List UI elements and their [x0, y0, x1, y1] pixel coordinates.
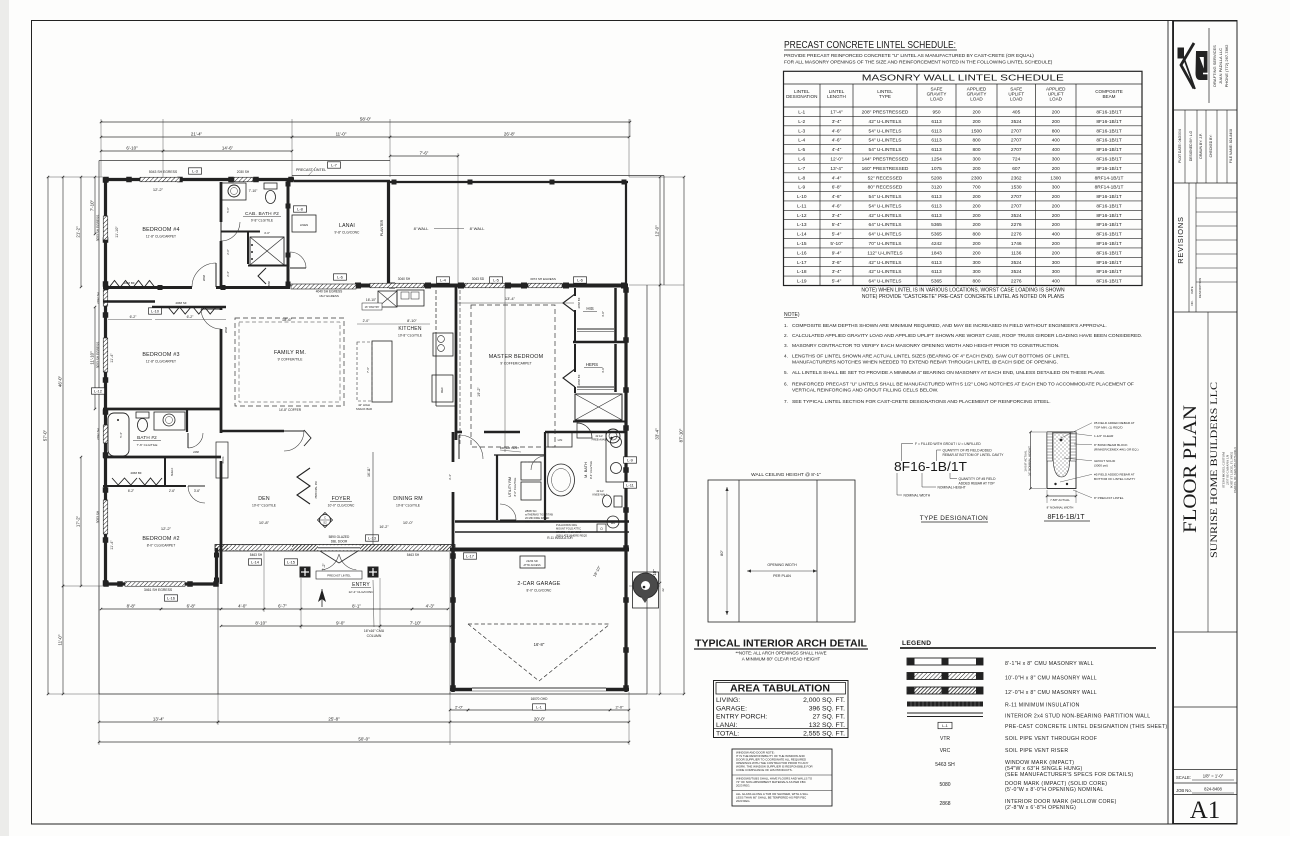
svg-text:L-14: L-14 [797, 232, 807, 238]
svg-text:L-10: L-10 [797, 194, 807, 200]
svg-text:L-17: L-17 [466, 554, 475, 559]
svg-text:4'-3": 4'-3" [426, 603, 435, 608]
svg-text:BOOK: BOOK [222, 456, 225, 463]
svg-text:8'-10": 8'-10" [255, 620, 267, 625]
svg-text:4'-6": 4'-6" [832, 194, 842, 200]
svg-text:2707: 2707 [1011, 203, 1022, 209]
svg-text:300: 300 [1052, 185, 1060, 191]
svg-text:2276: 2276 [1011, 279, 1022, 285]
svg-text:VRC: VRC [940, 748, 951, 754]
svg-text:6'-2": 6'-2" [130, 315, 138, 319]
svg-text:12'-0": 12'-0" [655, 225, 660, 237]
svg-text:200: 200 [972, 194, 980, 200]
svg-text:5'-4": 5'-4" [119, 432, 123, 438]
svg-text:950: 950 [932, 109, 940, 115]
svg-text:REINFORCED PRECAST "U" LINTELS: REINFORCED PRECAST "U" LINTELS SHALL BE … [792, 382, 1134, 388]
svg-text:L-7: L-7 [798, 166, 805, 172]
svg-text:400: 400 [1052, 279, 1060, 285]
svg-text:4068 BF: 4068 BF [130, 471, 142, 475]
svg-text:KNEE-WALL: KNEE-WALL [593, 493, 608, 497]
svg-text:42" U-LINTELS: 42" U-LINTELS [869, 269, 902, 275]
svg-text:BEDROOM #2: BEDROOM #2 [142, 536, 179, 542]
svg-text:54" U-LINTELS: 54" U-LINTELS [869, 203, 902, 209]
svg-text:2030 SH: 2030 SH [237, 170, 250, 174]
svg-text:SUNRISE HOME BUILDERS LLC: SUNRISE HOME BUILDERS LLC [1209, 382, 1219, 558]
svg-text:11'-4": 11'-4" [110, 353, 114, 363]
svg-text:2'-6": 2'-6" [226, 249, 230, 255]
svg-text:PRECAST LINTEL: PRECAST LINTEL [296, 168, 326, 172]
svg-text:2362: 2362 [1011, 175, 1022, 181]
svg-text:4'-0": 4'-0" [601, 311, 605, 317]
svg-text:80" RECESSED: 80" RECESSED [868, 185, 903, 191]
svg-text:6113: 6113 [931, 269, 942, 275]
svg-text:11'-0": 11'-0" [336, 131, 347, 136]
svg-text:QUANTITY OF #5 FIELD ADDED: QUANTITY OF #5 FIELD ADDED [943, 449, 993, 453]
svg-text:(RINKER/CEMEX #W1 OR EQ.): (RINKER/CEMEX #W1 OR EQ.) [1094, 448, 1139, 452]
svg-text:42 1/2: 42 1/2 [595, 434, 603, 438]
svg-text:ENTRY: ENTRY [352, 582, 370, 588]
svg-text:8" BOND BEAM BLOCK: 8" BOND BEAM BLOCK [1094, 443, 1129, 447]
svg-text:3040 SH: 3040 SH [398, 277, 411, 281]
svg-text:2023 REG.: 2023 REG. [736, 784, 750, 788]
svg-text:2668: 2668 [267, 281, 271, 287]
svg-text:A1: A1 [1190, 797, 1221, 824]
svg-text:200: 200 [1052, 213, 1060, 219]
svg-text:MASONRY CONTRACTOR TO VERIFY E: MASONRY CONTRACTOR TO VERIFY EACH MASONR… [792, 343, 1059, 349]
svg-text:L-1: L-1 [536, 705, 543, 710]
svg-text:3'-4": 3'-4" [832, 119, 842, 125]
svg-text:8'-0" CLG/TILE: 8'-0" CLG/TILE [513, 477, 517, 496]
svg-text:(3000 psi): (3000 psi) [1094, 464, 1108, 468]
svg-text:1300: 1300 [1050, 175, 1061, 181]
svg-text:13'-4": 13'-4" [153, 716, 165, 721]
svg-text:9'-4": 9'-4" [832, 250, 842, 256]
svg-text:#5 FIELD ADDED REBAR AT: #5 FIELD ADDED REBAR AT [1094, 473, 1135, 477]
svg-text:5043 SH EGRESS: 5043 SH EGRESS [149, 170, 178, 174]
svg-text:DBL DOOR: DBL DOOR [331, 540, 348, 544]
svg-text:54" U-LINTELS: 54" U-LINTELS [869, 138, 902, 144]
svg-text:2'-0": 2'-0" [363, 319, 371, 323]
svg-text:16x7 EGRESS: 16x7 EGRESS [319, 294, 339, 298]
svg-text:L-16: L-16 [797, 250, 807, 256]
svg-text:TOP MIN. (1) REQ'D: TOP MIN. (1) REQ'D [1094, 426, 1123, 430]
svg-text:L-18: L-18 [797, 269, 807, 275]
svg-text:8'-1"H x 8" CMU MASONRY WALL: 8'-1"H x 8" CMU MASONRY WALL [1005, 661, 1094, 667]
svg-text:REVISIONS: REVISIONS [1176, 216, 1185, 263]
svg-text:20 MIN FIRE RATED: 20 MIN FIRE RATED [525, 516, 549, 520]
svg-text:BATH #2: BATH #2 [137, 435, 157, 440]
svg-text:200: 200 [1052, 250, 1060, 256]
svg-text:L-8: L-8 [798, 175, 805, 181]
svg-text:CALCULATED APPLIED GRAVITY LOA: CALCULATED APPLIED GRAVITY LOAD AND APPL… [792, 333, 1142, 339]
svg-text:11'-0": 11'-0" [58, 634, 63, 645]
svg-text:DRAWN BY: J.P.: DRAWN BY: J.P. [1199, 133, 1203, 158]
svg-text:1.: 1. [784, 323, 788, 328]
svg-text:(5'-0"W x 8'-0"H OPENING) NOMI: (5'-0"W x 8'-0"H OPENING) NOMINAL [1005, 787, 1104, 793]
svg-text:OPENING WIDTH: OPENING WIDTH [767, 563, 797, 567]
svg-text:26'-8": 26'-8" [504, 131, 516, 136]
svg-text:64" U-LINTELS: 64" U-LINTELS [869, 222, 902, 228]
svg-text:HIS: HIS [586, 306, 593, 311]
svg-text:CAB. BATH #2: CAB. BATH #2 [245, 211, 279, 217]
svg-text:2'-6": 2'-6" [169, 489, 175, 493]
svg-text:3461 SH EGRESS: 3461 SH EGRESS [144, 588, 173, 592]
svg-text:REBAR AT BOTTOM OF LINTEL CAVI: REBAR AT BOTTOM OF LINTEL CAVITY [943, 453, 1005, 457]
svg-text:L-14: L-14 [251, 560, 260, 565]
svg-text:PER PLAN: PER PLAN [773, 574, 791, 578]
svg-text:2-CAR GARAGE: 2-CAR GARAGE [517, 581, 560, 587]
svg-text:PROVIDE PRECAST REINFORCED CON: PROVIDE PRECAST REINFORCED CONCRETE "U" … [784, 53, 1034, 59]
svg-text:DESCRIPTION: DESCRIPTION [1198, 278, 1202, 299]
svg-text:200: 200 [972, 166, 980, 172]
svg-text:64" U-LINTELS: 64" U-LINTELS [869, 279, 902, 285]
svg-text:800: 800 [972, 138, 980, 144]
svg-text:WALL CEILING HEIGHT @ 8'-1": WALL CEILING HEIGHT @ 8'-1" [751, 472, 821, 478]
svg-text:2'-0": 2'-0" [455, 704, 464, 709]
svg-text:42 1/2: 42 1/2 [596, 489, 604, 493]
svg-text:ENTRY PORCH:: ENTRY PORCH: [716, 714, 767, 721]
svg-text:2032 SH: 2032 SH [96, 428, 100, 440]
svg-text:19'-2": 19'-2" [477, 387, 481, 397]
svg-text:21'-4": 21'-4" [191, 131, 203, 136]
svg-text:PARCEL ID: 3420-685-0776-000-5: PARCEL ID: 3420-685-0776-000-5 [1233, 447, 1237, 493]
svg-text:BEAM: BEAM [1102, 94, 1115, 99]
svg-text:PRE-CAST CONCRETE LINTEL DESIG: PRE-CAST CONCRETE LINTEL DESIGNATION (TH… [1005, 724, 1167, 730]
svg-text:PRECAST CONCRETE LINTEL SCHEDU: PRECAST CONCRETE LINTEL SCHEDULE: [784, 40, 956, 51]
svg-text:L-11: L-11 [626, 483, 634, 488]
svg-text:9'-8" CLG/TILE: 9'-8" CLG/TILE [251, 219, 274, 223]
svg-text:42" U-LINTELS: 42" U-LINTELS [869, 213, 902, 219]
svg-text:AREA TABULATION: AREA TABULATION [730, 684, 830, 695]
svg-text:1136: 1136 [1011, 250, 1022, 256]
svg-text:SELF CLOSING: SELF CLOSING [525, 520, 544, 524]
svg-text:2868: 2868 [939, 801, 950, 807]
svg-text:PRECAST LINTEL: PRECAST LINTEL [327, 574, 351, 578]
svg-text:3'-4": 3'-4" [832, 269, 842, 275]
svg-text:L-9: L-9 [798, 185, 805, 191]
svg-text:LIN: LIN [558, 438, 563, 442]
svg-text:2868 BF: 2868 BF [577, 374, 581, 385]
svg-text:13'-4": 13'-4" [505, 296, 516, 301]
svg-text:TYPICAL INTERIOR ARCH DETAIL: TYPICAL INTERIOR ARCH DETAIL [695, 639, 868, 650]
svg-text:22: 22 [661, 588, 665, 592]
svg-text:6113: 6113 [931, 213, 942, 219]
svg-text:INSULATE WHERE REQD: INSULATE WHERE REQD [556, 534, 587, 538]
svg-text:6'-7": 6'-7" [278, 603, 287, 608]
svg-text:LOAD: LOAD [970, 97, 983, 102]
svg-text:5463 SH: 5463 SH [935, 762, 955, 768]
svg-text:8RF14-1B/1T: 8RF14-1B/1T [1095, 175, 1124, 181]
svg-text:PLANTER: PLANTER [380, 219, 384, 236]
svg-text:8" NOMINAL WIDTH: 8" NOMINAL WIDTH [1047, 506, 1074, 510]
svg-text:4242: 4242 [931, 241, 942, 247]
svg-text:5208: 5208 [931, 175, 942, 181]
svg-text:200: 200 [972, 250, 980, 256]
svg-text:10'-0"H x 8" CMU MASONRY WALL: 10'-0"H x 8" CMU MASONRY WALL [1005, 676, 1097, 682]
svg-text:8F16-1B/1T: 8F16-1B/1T [1096, 203, 1121, 209]
svg-text:GROUT SOLID: GROUT SOLID [1094, 459, 1116, 463]
svg-text:LINEN: LINEN [300, 223, 308, 227]
svg-text:200: 200 [972, 109, 980, 115]
svg-text:1075: 1075 [931, 166, 942, 172]
svg-text:L-5: L-5 [798, 147, 805, 153]
svg-text:2'-4": 2'-4" [226, 271, 230, 277]
svg-text:NOTE): NOTE) [784, 312, 800, 318]
svg-text:52" RECESSED: 52" RECESSED [868, 175, 903, 181]
svg-text:4'-0": 4'-0" [264, 231, 270, 235]
svg-text:2707: 2707 [1011, 138, 1022, 144]
svg-text:3043 SD: 3043 SD [472, 277, 485, 281]
svg-text:200: 200 [1052, 203, 1060, 209]
svg-text:L-17: L-17 [797, 260, 807, 266]
svg-text:17'-4": 17'-4" [830, 109, 843, 115]
svg-text:12'-2": 12'-2" [161, 526, 172, 531]
svg-text:80": 80" [719, 549, 724, 555]
svg-text:12'-4" CLG/CONC: 12'-4" CLG/CONC [348, 590, 374, 594]
svg-text:R-11 MINIMUM INSULATION: R-11 MINIMUM INSULATION [1005, 703, 1080, 709]
svg-text:6'-2": 6'-2" [187, 315, 195, 319]
svg-text:400: 400 [1052, 138, 1060, 144]
svg-text:DESIGNED BY: L.G: DESIGNED BY: L.G [1189, 130, 1193, 161]
svg-text:L-16: L-16 [167, 596, 176, 601]
svg-text:NOMINAL WIDTH: NOMINAL WIDTH [904, 494, 931, 498]
svg-text:L-5: L-5 [493, 278, 500, 283]
svg-text:(2'-8"W x 6'-8"H OPENING): (2'-8"W x 6'-8"H OPENING) [1005, 805, 1076, 811]
svg-text:7888 DBL PR: 7888 DBL PR [314, 481, 318, 499]
svg-text:132 SQ. FT.: 132 SQ. FT. [809, 722, 845, 729]
svg-text:2707: 2707 [1011, 194, 1022, 200]
svg-text:6113: 6113 [931, 138, 942, 144]
svg-text:25'-8": 25'-8" [328, 716, 340, 721]
svg-text:8F16-1B/1T: 8F16-1B/1T [1096, 128, 1121, 134]
svg-text:8'-8": 8'-8" [127, 603, 136, 608]
svg-text:PHONE (772) 267-7862: PHONE (772) 267-7862 [1224, 44, 1229, 87]
svg-text:5463 SH: 5463 SH [407, 553, 420, 557]
svg-text:7-5/8" ACTUAL: 7-5/8" ACTUAL [1050, 498, 1070, 502]
svg-text:L-6: L-6 [577, 278, 584, 283]
svg-text:3053 SH: 3053 SH [96, 510, 100, 523]
svg-text:PLOT DATE: 04/20/04: PLOT DATE: 04/20/04 [1178, 129, 1182, 163]
svg-text:11'-8" CLG/CARPET: 11'-8" CLG/CARPET [146, 360, 176, 364]
svg-text:8' WALL: 8' WALL [414, 226, 430, 231]
svg-text:SCALE:: SCALE: [1176, 775, 1191, 780]
svg-text:LEGEND: LEGEND [902, 640, 931, 647]
svg-text:L-2: L-2 [798, 119, 805, 125]
svg-text:200: 200 [972, 241, 980, 247]
svg-text:8'-0" CLG/CONC: 8'-0" CLG/CONC [527, 589, 553, 593]
svg-text:8RF14-1B/1T: 8RF14-1B/1T [1095, 185, 1124, 191]
svg-text:10'-8" CLG/TILE: 10'-8" CLG/TILE [396, 504, 421, 508]
svg-text:2276: 2276 [1011, 232, 1022, 238]
svg-text:6113: 6113 [931, 128, 942, 134]
svg-text:13'-4": 13'-4" [830, 166, 843, 172]
svg-text:200: 200 [1052, 222, 1060, 228]
svg-text:12'-0": 12'-0" [830, 156, 843, 162]
svg-text:3524: 3524 [1011, 260, 1022, 266]
svg-text:22x54 SD: 22x54 SD [526, 559, 538, 563]
svg-text:8F16-1B/1T: 8F16-1B/1T [1096, 119, 1121, 125]
svg-text:LOAD: LOAD [1049, 97, 1062, 102]
svg-text:MASONRY WALL LINTEL SCHEDUL: MASONRY WALL LINTEL SCHEDULE [862, 74, 1064, 83]
svg-text:2276: 2276 [1011, 222, 1022, 228]
svg-text:NO.: NO. [1190, 300, 1194, 305]
svg-text:87'-10": 87'-10" [679, 428, 684, 442]
svg-text:L-12: L-12 [94, 389, 103, 394]
svg-text:16'-2": 16'-2" [379, 525, 389, 529]
svg-text:A MINIMUM 80" CLEAR HEAD HEIGH: A MINIMUM 80" CLEAR HEAD HEIGHT [742, 657, 821, 662]
svg-text:1746: 1746 [1011, 241, 1022, 247]
svg-text:ATTIC ACCESS: ATTIC ACCESS [523, 564, 540, 567]
svg-text:2032 SH: 2032 SH [96, 292, 100, 304]
svg-text:4'-6": 4'-6" [832, 128, 842, 134]
svg-text:8F16-1B/1T: 8F16-1B/1T [894, 460, 967, 474]
svg-text:GARAGE:: GARAGE: [716, 705, 747, 712]
svg-text:200: 200 [972, 213, 980, 219]
svg-text:4'-4": 4'-4" [832, 147, 842, 153]
svg-text:L-1: L-1 [798, 109, 805, 115]
svg-text:INTERIOR 2x4 STUD NON-BEARING: INTERIOR 2x4 STUD NON-BEARING PARTITION … [1005, 714, 1150, 720]
svg-text:VERTICAL REINFORCING AND GROUT: VERTICAL REINFORCING AND GROUT FILLING C… [792, 388, 938, 394]
svg-text:S2: S2 [323, 521, 327, 525]
svg-text:FAMILY RM.: FAMILY RM. [274, 350, 306, 356]
svg-text:3524: 3524 [1011, 213, 1022, 219]
svg-text:ALL LINTELS SHALL BE SET TO PR: ALL LINTELS SHALL BE SET TO PROVIDE A MI… [792, 370, 1105, 376]
svg-text:8F16-1B/1T: 8F16-1B/1T [1096, 147, 1121, 153]
svg-text:400: 400 [1052, 147, 1060, 153]
svg-text:10'-8" CLG/TILE: 10'-8" CLG/TILE [398, 334, 423, 338]
svg-text:3053 SH EGRESS: 3053 SH EGRESS [96, 342, 100, 369]
svg-text:7'-10": 7'-10" [90, 199, 95, 211]
svg-text:2300: 2300 [971, 175, 982, 181]
svg-text:SNACK BAR: SNACK BAR [356, 407, 372, 411]
svg-text:L-19: L-19 [797, 279, 807, 285]
svg-text:12'-2": 12'-2" [153, 187, 164, 192]
svg-text:9'-0": 9'-0" [336, 620, 345, 625]
svg-text:700: 700 [972, 185, 980, 191]
svg-text:L-11: L-11 [797, 203, 807, 209]
svg-text:5'-4": 5'-4" [832, 279, 842, 285]
svg-text:396 SQ. FT.: 396 SQ. FT. [809, 705, 845, 712]
svg-text:200: 200 [972, 119, 980, 125]
svg-text:58'-0": 58'-0" [360, 116, 372, 121]
svg-text:21'-2": 21'-2" [76, 226, 81, 238]
svg-text:8" PRECAST LINTEL: 8" PRECAST LINTEL [1094, 496, 1124, 500]
svg-text:8F16-1B/1T: 8F16-1B/1T [1096, 250, 1121, 256]
svg-text:800: 800 [1052, 128, 1060, 134]
svg-text:8F16-1B/1T: 8F16-1B/1T [1096, 232, 1121, 238]
svg-text:3'-4": 3'-4" [448, 474, 452, 480]
svg-text:607: 607 [1012, 166, 1020, 172]
svg-text:11'-10": 11'-10" [115, 226, 119, 238]
svg-text:3120: 3120 [931, 185, 942, 191]
svg-text:TOTAL:: TOTAL: [716, 731, 739, 738]
svg-text:8'-10": 8'-10" [407, 319, 417, 323]
svg-text:16" PANTRY: 16" PANTRY [365, 305, 380, 309]
svg-text:2868 SC: 2868 SC [525, 509, 538, 513]
svg-text:SOIL PIPE VENT RISER: SOIL PIPE VENT RISER [1005, 748, 1068, 754]
svg-text:17'-2": 17'-2" [76, 515, 81, 527]
svg-text:LIVING:: LIVING: [716, 697, 740, 704]
svg-text:112" U-LINTELS: 112" U-LINTELS [867, 250, 902, 256]
svg-text:L-12: L-12 [797, 213, 807, 219]
svg-text:200: 200 [1052, 241, 1060, 247]
svg-text:2,000 SQ. FT.: 2,000 SQ. FT. [803, 697, 845, 704]
svg-text:6'-2": 6'-2" [128, 489, 134, 493]
svg-text:8F16-1B/1T: 8F16-1B/1T [1096, 269, 1121, 275]
svg-text:6113: 6113 [931, 203, 942, 209]
svg-text:6'-8": 6'-8" [187, 603, 196, 608]
svg-text:4040 SH EGRESS: 4040 SH EGRESS [316, 290, 343, 294]
svg-text:w/THERMO TIGHT/TAB: w/THERMO TIGHT/TAB [525, 513, 553, 517]
svg-text:2868: 2868 [202, 274, 206, 281]
svg-text:14'-8" COFFER: 14'-8" COFFER [279, 408, 302, 412]
svg-text:6113: 6113 [931, 119, 942, 125]
svg-text:CHECKED BY:: CHECKED BY: [1209, 135, 1213, 158]
svg-text:200: 200 [972, 222, 980, 228]
svg-text:**NOTE: ALL ARCH OPENINGS SHA: **NOTE: ALL ARCH OPENINGS SHALL HAVE [735, 651, 826, 656]
svg-text:L-13: L-13 [368, 536, 377, 541]
svg-text:11'-4": 11'-4" [110, 540, 114, 550]
svg-text:FLOOR PLAN: FLOOR PLAN [1181, 405, 1201, 533]
svg-text:BOTTOM OF LINTEL CAVITY: BOTTOM OF LINTEL CAVITY [1094, 477, 1135, 481]
svg-text:MOUNT FOLD ATTIC: MOUNT FOLD ATTIC [556, 527, 581, 531]
svg-text:2.: 2. [784, 333, 788, 338]
svg-text:16'-11": 16'-11" [367, 467, 371, 477]
svg-text:10'-0" CLG/CONC: 10'-0" CLG/CONC [328, 504, 355, 508]
svg-text:5365: 5365 [931, 232, 942, 238]
svg-text:QUANTITY OF #5 FIELD: QUANTITY OF #5 FIELD [959, 477, 997, 481]
svg-text:STAIRS + R-19 VENT: STAIRS + R-19 VENT [556, 530, 582, 534]
svg-text:4'-0": 4'-0" [601, 367, 605, 373]
svg-text:DATE: DATE [1190, 286, 1194, 293]
svg-text:6113: 6113 [931, 260, 942, 266]
svg-text:10'-8": 10'-8" [259, 520, 270, 525]
svg-text:3.: 3. [784, 343, 788, 348]
svg-text:6113: 6113 [931, 194, 942, 200]
svg-text:1843: 1843 [931, 250, 942, 256]
svg-text:200: 200 [1052, 119, 1060, 125]
svg-text:4068 SF: 4068 SF [175, 301, 187, 305]
svg-text:(SEE MANUFACTURER'S SPECS FOR: (SEE MANUFACTURER'S SPECS FOR DETAILS) [1005, 772, 1133, 778]
svg-text:5890 GLAZED: 5890 GLAZED [329, 535, 350, 539]
svg-text:8F16-1B/1T: 8F16-1B/1T [1096, 109, 1121, 115]
svg-text:2468: 2468 [193, 450, 199, 454]
svg-text:2868: 2868 [224, 326, 228, 333]
svg-text:54" U-LINTELS: 54" U-LINTELS [869, 128, 902, 134]
svg-text:DINING RM: DINING RM [393, 496, 422, 502]
svg-text:KITCHEN: KITCHEN [398, 326, 422, 332]
svg-text:L-8: L-8 [297, 207, 304, 212]
svg-text:800: 800 [972, 232, 980, 238]
svg-text:FOR ALL MASONRY OPENINGS OF TH: FOR ALL MASONRY OPENINGS OF THE SIZE AND… [784, 60, 1053, 66]
svg-text:8F16-1B/1T: 8F16-1B/1T [1096, 260, 1121, 266]
svg-text:57'-0": 57'-0" [43, 429, 48, 441]
svg-text:4.: 4. [784, 354, 788, 359]
svg-text:L-4: L-4 [798, 138, 805, 144]
svg-text:LENGTH: LENGTH [827, 94, 846, 99]
svg-text:7.: 7. [784, 399, 788, 404]
svg-text:4'-6": 4'-6" [832, 203, 842, 209]
svg-text:9'-4" CLG/TILE: 9'-4" CLG/TILE [589, 461, 593, 479]
svg-text:TYPE DESIGNATION: TYPE DESIGNATION [920, 515, 988, 522]
svg-text:5365: 5365 [931, 222, 942, 228]
svg-text:6'-8": 6'-8" [832, 185, 842, 191]
svg-text:46'-0": 46'-0" [58, 375, 63, 387]
svg-text:7'-6" CLG/TILE: 7'-6" CLG/TILE [137, 443, 158, 447]
svg-text:LANAI:: LANAI: [716, 722, 738, 729]
svg-text:16070 OHD: 16070 OHD [531, 697, 549, 701]
svg-text:2,555 SQ. FT.: 2,555 SQ. FT. [803, 731, 845, 738]
